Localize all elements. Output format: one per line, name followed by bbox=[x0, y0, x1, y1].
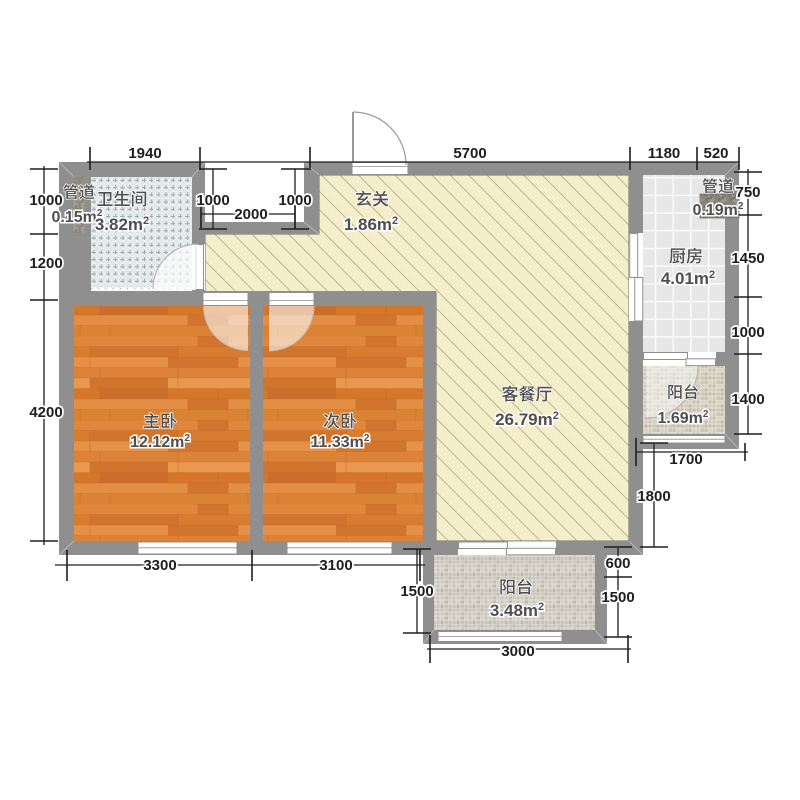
svg-text:3000: 3000 bbox=[501, 643, 534, 660]
svg-text:1.86m2: 1.86m2 bbox=[344, 215, 398, 234]
svg-text:1450: 1450 bbox=[731, 250, 764, 267]
svg-text:1000: 1000 bbox=[278, 192, 311, 209]
svg-text:1700: 1700 bbox=[669, 451, 702, 468]
svg-text:4.01m2: 4.01m2 bbox=[661, 269, 715, 288]
svg-text:4200: 4200 bbox=[29, 404, 62, 421]
svg-text:1180: 1180 bbox=[648, 145, 681, 162]
svg-text:2000: 2000 bbox=[234, 206, 267, 223]
svg-text:1.69m2: 1.69m2 bbox=[658, 409, 709, 427]
svg-text:5700: 5700 bbox=[453, 145, 486, 162]
svg-text:11.33m2: 11.33m2 bbox=[311, 433, 370, 451]
svg-text:26.79m2: 26.79m2 bbox=[495, 410, 559, 429]
svg-text:1940: 1940 bbox=[128, 145, 161, 162]
svg-text:1500: 1500 bbox=[601, 589, 634, 606]
svg-text:3.82m2: 3.82m2 bbox=[95, 215, 149, 234]
svg-text:1000: 1000 bbox=[731, 324, 764, 341]
svg-text:1000: 1000 bbox=[196, 192, 229, 209]
svg-text:3300: 3300 bbox=[143, 557, 176, 574]
svg-text:1400: 1400 bbox=[731, 391, 764, 408]
svg-text:3100: 3100 bbox=[319, 557, 352, 574]
svg-text:1000: 1000 bbox=[29, 192, 62, 209]
svg-text:3.48m2: 3.48m2 bbox=[490, 601, 544, 620]
svg-text:1200: 1200 bbox=[29, 255, 62, 272]
svg-text:750: 750 bbox=[735, 184, 760, 201]
svg-text:12.12m2: 12.12m2 bbox=[130, 433, 190, 451]
svg-text:0.19m2: 0.19m2 bbox=[693, 201, 744, 219]
svg-text:600: 600 bbox=[605, 555, 630, 572]
svg-text:1800: 1800 bbox=[637, 488, 670, 505]
svg-text:1500: 1500 bbox=[400, 583, 433, 600]
svg-text:520: 520 bbox=[703, 145, 728, 162]
